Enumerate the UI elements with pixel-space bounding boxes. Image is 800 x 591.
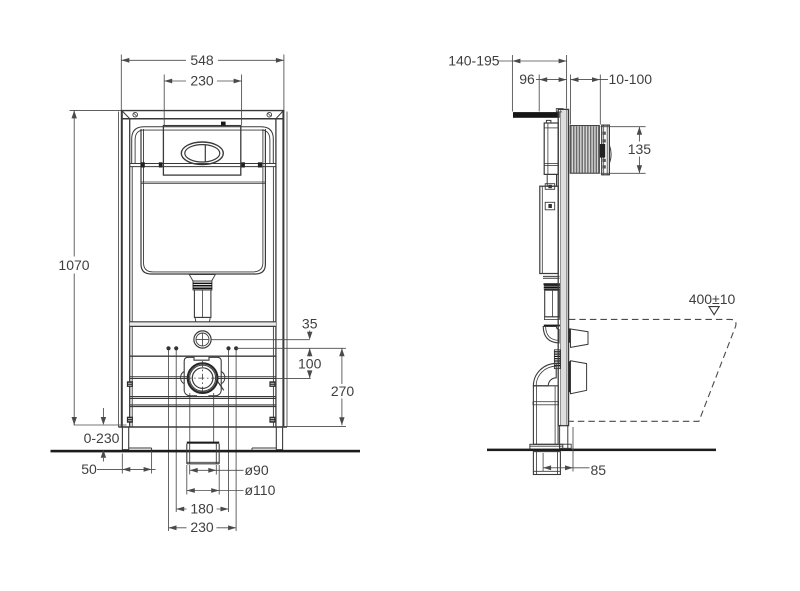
svg-text:270: 270 — [331, 383, 355, 399]
svg-text:10-100: 10-100 — [609, 71, 653, 87]
svg-text:35: 35 — [302, 316, 318, 332]
svg-text:0-230: 0-230 — [84, 430, 120, 446]
svg-text:85: 85 — [591, 462, 607, 478]
svg-text:ø90: ø90 — [245, 462, 269, 478]
svg-text:100: 100 — [298, 355, 322, 371]
svg-text:ø110: ø110 — [245, 482, 276, 498]
svg-text:548: 548 — [190, 52, 214, 68]
svg-text:230: 230 — [190, 73, 214, 89]
svg-text:140-195: 140-195 — [448, 53, 500, 69]
svg-text:50: 50 — [81, 461, 97, 477]
svg-text:96: 96 — [519, 71, 535, 87]
svg-text:400±10: 400±10 — [689, 291, 736, 307]
svg-text:230: 230 — [190, 519, 214, 535]
svg-text:1070: 1070 — [58, 257, 89, 273]
svg-text:135: 135 — [628, 141, 652, 157]
svg-text:180: 180 — [190, 500, 214, 516]
